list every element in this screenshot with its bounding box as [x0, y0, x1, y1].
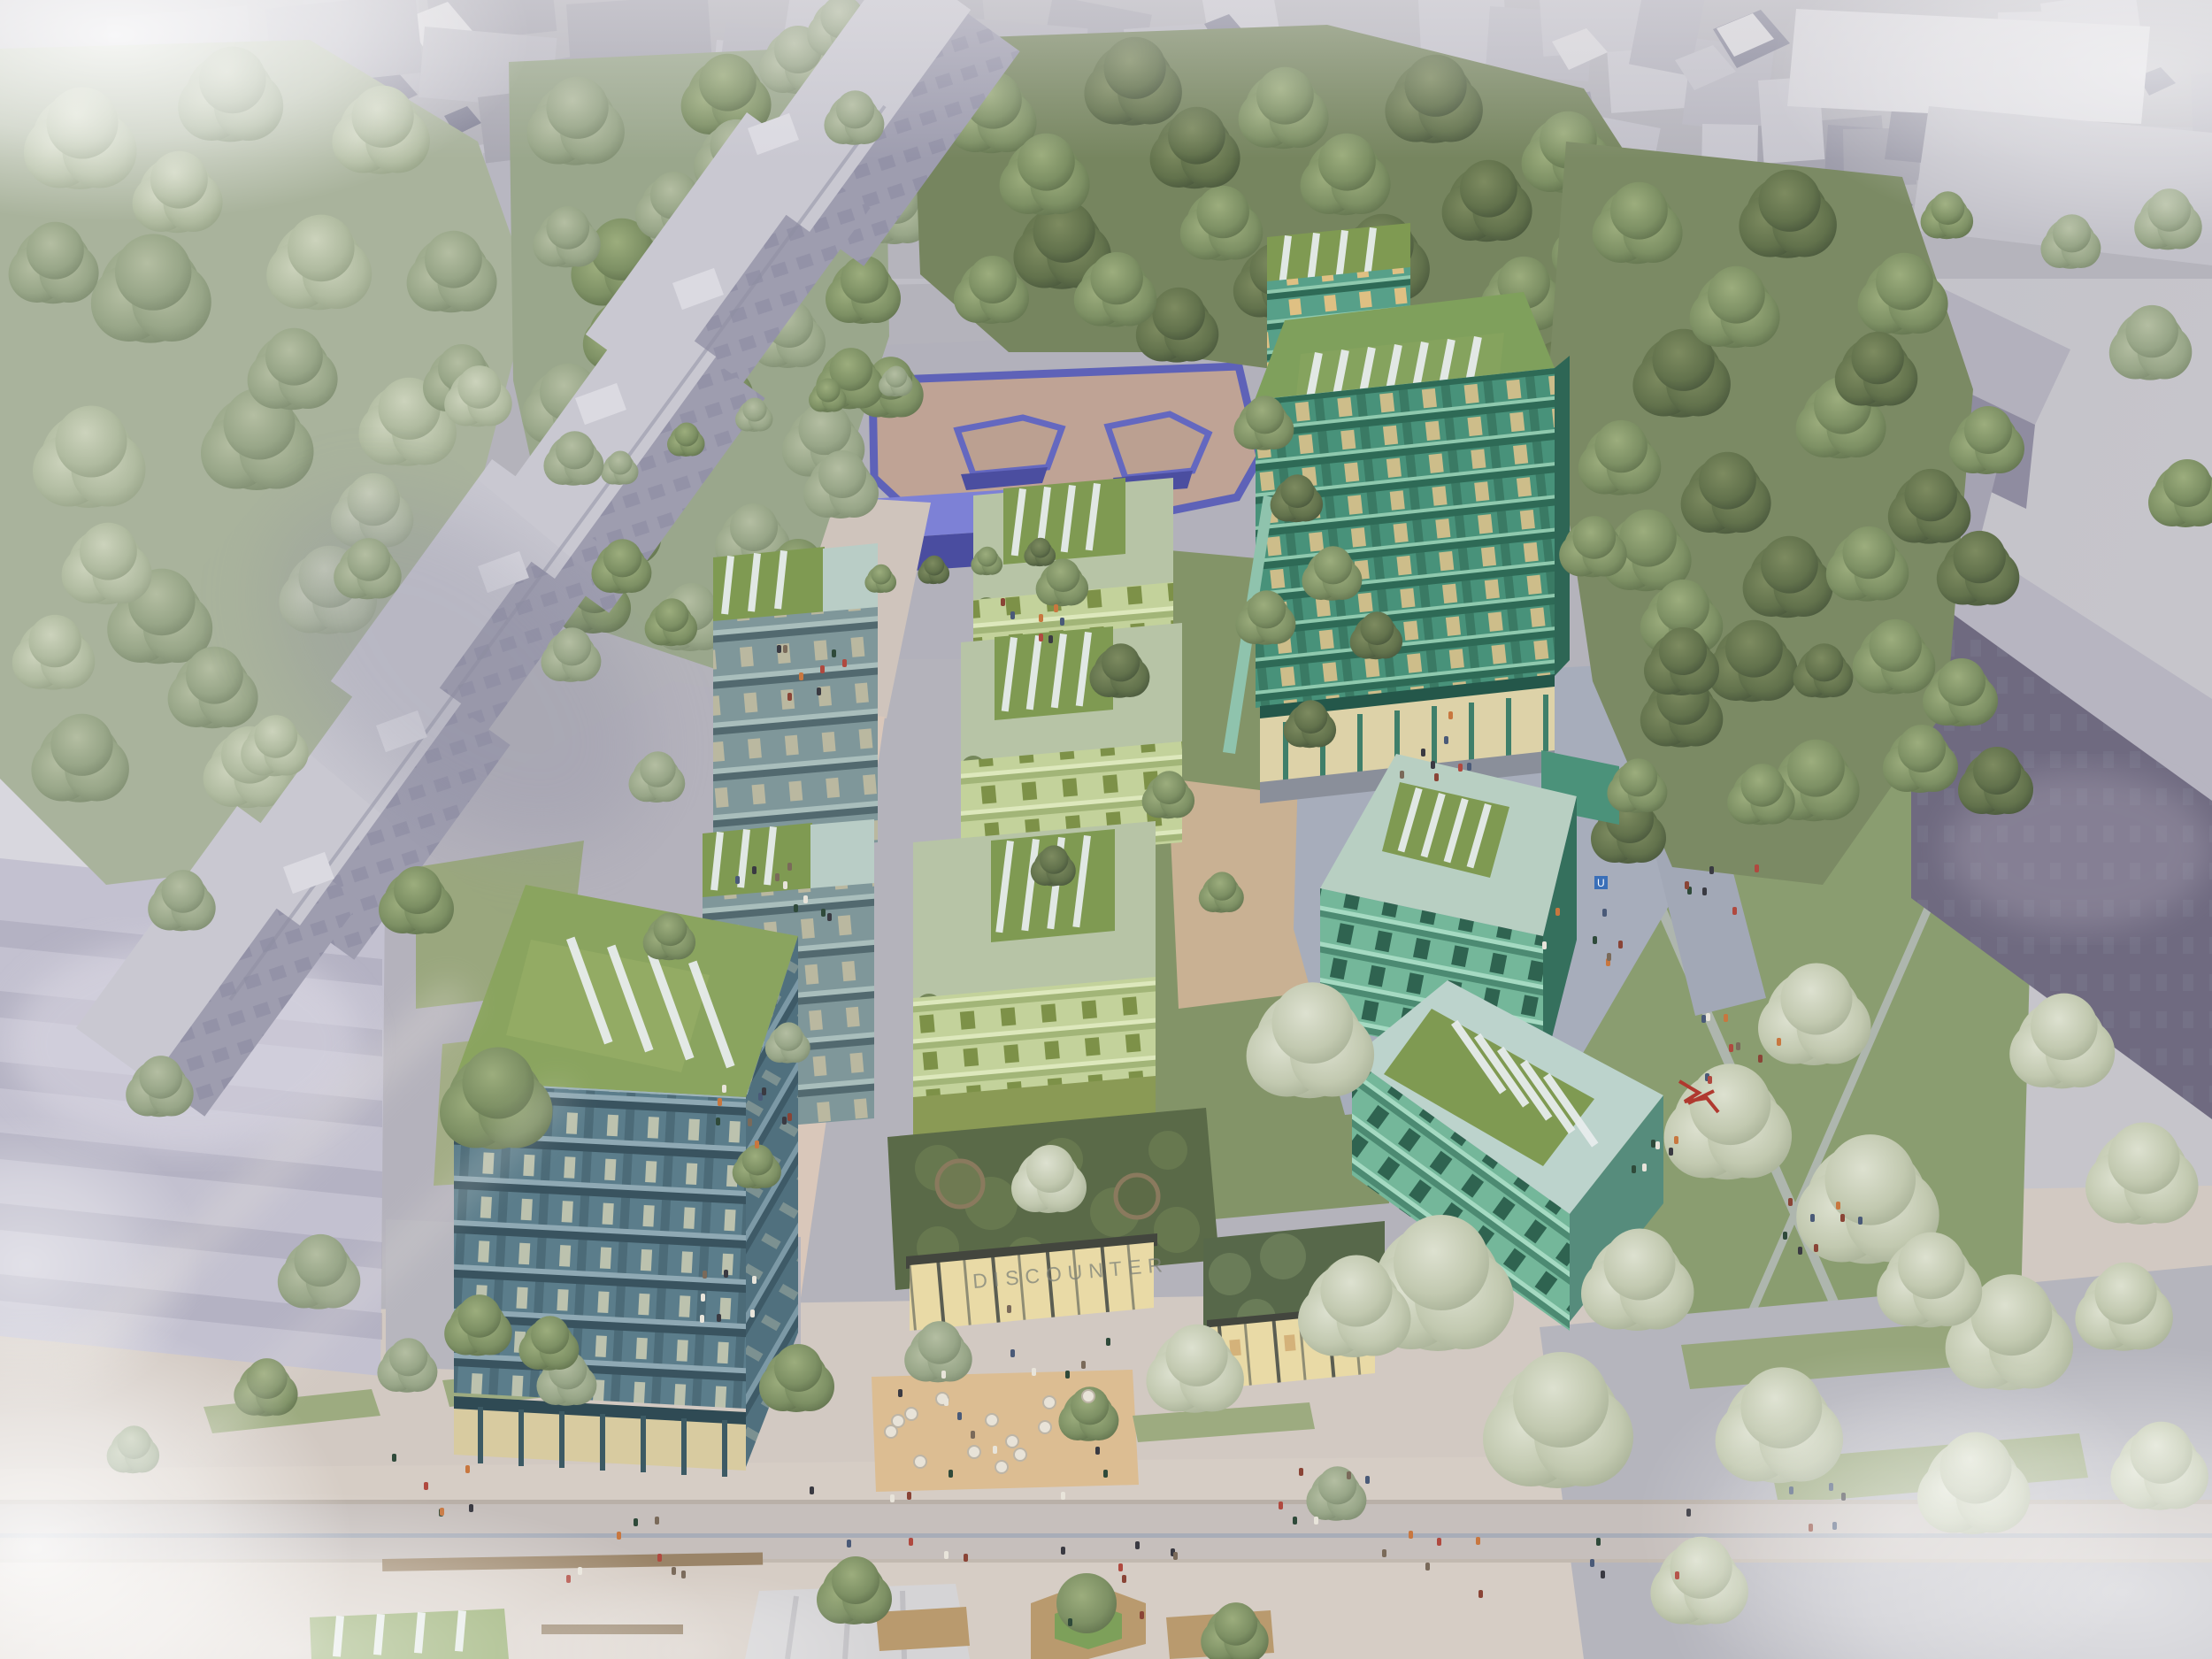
svg-text:U: U: [1597, 877, 1605, 889]
